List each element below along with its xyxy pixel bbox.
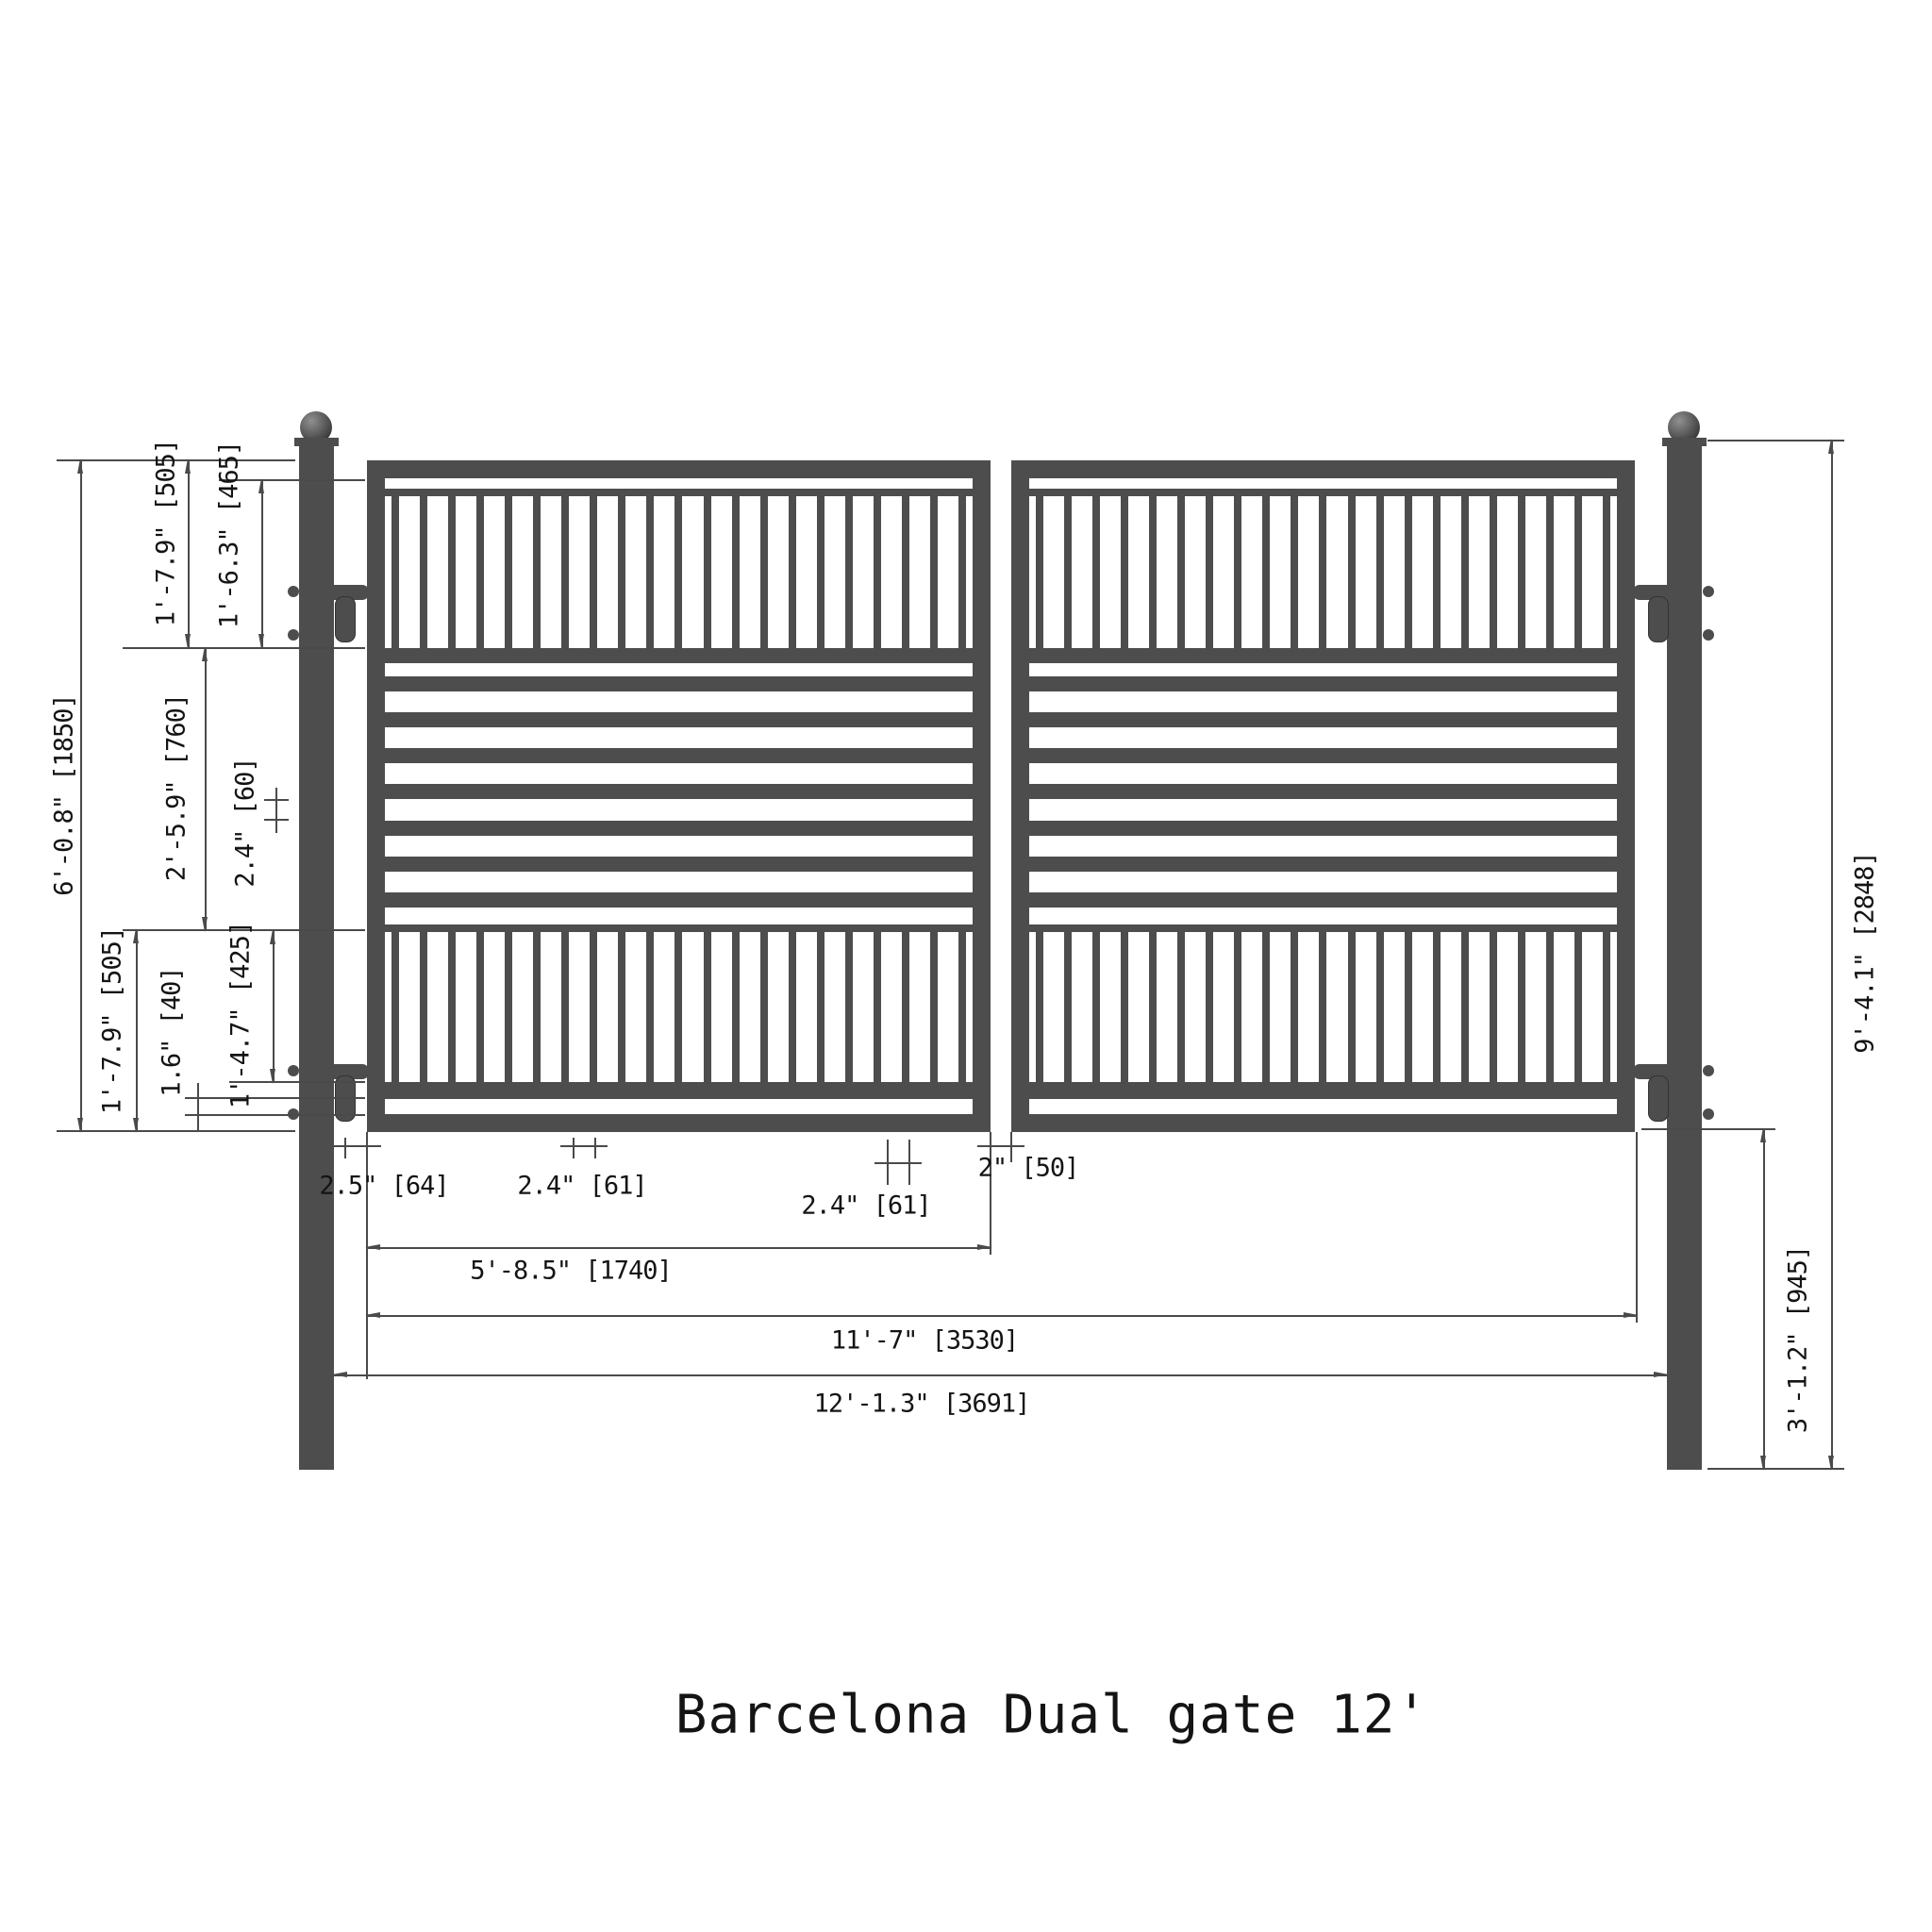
dim-line-leaf-width	[367, 1247, 991, 1249]
picket	[420, 496, 427, 648]
extension-line	[57, 1130, 295, 1132]
dim-line-top-picket	[261, 480, 263, 647]
picket	[1376, 496, 1384, 648]
mid-bar	[1029, 857, 1617, 872]
picket	[902, 932, 909, 1082]
extension-line	[1707, 1468, 1844, 1470]
picket	[590, 496, 597, 648]
picket	[561, 932, 569, 1082]
bottom-picket-row	[385, 932, 973, 1082]
extension-line	[990, 1132, 991, 1255]
picket	[533, 932, 541, 1082]
dim-line-post-below-gate	[1763, 1129, 1765, 1469]
picket	[1433, 932, 1441, 1082]
picket-bottom-rail	[385, 648, 973, 663]
picket	[1092, 932, 1100, 1082]
gate-leaf-left	[367, 460, 991, 1132]
picket	[930, 496, 938, 648]
gate-leaf-right	[1011, 460, 1635, 1132]
picket	[618, 932, 625, 1082]
picket	[1461, 496, 1469, 648]
picket	[704, 932, 711, 1082]
picket	[1206, 932, 1213, 1082]
picket-top-rail	[1029, 489, 1617, 496]
dim-text-picket-gap-bottom: 2.4" [61]	[801, 1191, 930, 1221]
gate-drawing: 6'-0.8" [1850] 1'-7.9" [505] 1'-6.3" [46…	[0, 0, 1932, 1932]
picket	[675, 496, 682, 648]
mid-bar	[1029, 712, 1617, 727]
dim-line-bar-spacing	[275, 788, 277, 833]
mid-bar	[1029, 892, 1617, 908]
picket	[1064, 496, 1072, 648]
picket	[561, 496, 569, 648]
picket	[476, 496, 484, 648]
mid-bar	[385, 676, 973, 691]
mid-bar	[385, 712, 973, 727]
dim-text-gate-height: 6'-0.8" [1850]	[50, 694, 79, 896]
top-picket-row	[1029, 496, 1617, 648]
picket	[1262, 932, 1270, 1082]
dim-line-bottom-gap	[197, 1083, 199, 1130]
dim-text-overall-width: 12'-1.3" [3691]	[814, 1390, 1030, 1419]
dim-line-overall-width	[334, 1374, 1667, 1376]
picket-bottom-rail	[1029, 1082, 1617, 1099]
picket	[1546, 496, 1554, 648]
picket-bottom-rail	[385, 1082, 973, 1099]
dim-text-leaf-width: 5'-8.5" [1740]	[470, 1257, 672, 1286]
picket	[1603, 932, 1610, 1082]
picket	[618, 496, 625, 648]
extension-line	[366, 1132, 368, 1379]
picket	[448, 932, 456, 1082]
picket	[1376, 932, 1384, 1082]
picket	[732, 496, 740, 648]
dim-line-bottom-section	[136, 930, 138, 1131]
extension-line	[1641, 1128, 1775, 1130]
picket	[1574, 932, 1582, 1082]
bottom-picket-row	[1029, 932, 1617, 1082]
picket	[1206, 496, 1213, 648]
picket	[1234, 932, 1241, 1082]
picket	[420, 932, 427, 1082]
picket	[1092, 496, 1100, 648]
extension-line	[185, 1114, 365, 1116]
picket	[1177, 932, 1185, 1082]
picket	[874, 932, 881, 1082]
dim-text-post-height: 9'-4.1" [2848]	[1851, 852, 1880, 1054]
picket	[930, 932, 938, 1082]
picket	[1546, 932, 1554, 1082]
dim-line-post-height	[1831, 441, 1833, 1469]
picket	[1490, 932, 1497, 1082]
dim-line-gate-width	[367, 1315, 1637, 1317]
mid-bar	[385, 748, 973, 763]
mid-bar	[385, 784, 973, 799]
dim-text-bottom-picket-height: 1'-4.7" [425]	[226, 922, 256, 1108]
picket	[1348, 932, 1356, 1082]
picket	[1461, 932, 1469, 1082]
picket	[505, 496, 512, 648]
picket	[760, 932, 768, 1082]
drawing-title: Barcelona Dual gate 12'	[675, 1685, 1428, 1746]
extension-line	[1707, 440, 1844, 441]
picket	[675, 932, 682, 1082]
picket	[845, 932, 853, 1082]
picket	[1433, 496, 1441, 648]
picket	[1121, 496, 1128, 648]
dim-line-gate-height	[80, 460, 82, 1131]
dim-text-gate-width: 11'-7" [3530]	[831, 1326, 1018, 1356]
picket-top-rail	[1029, 924, 1617, 932]
picket	[789, 932, 796, 1082]
picket	[1291, 496, 1298, 648]
dim-text-top-picket-height: 1'-6.3" [465]	[215, 441, 244, 628]
picket	[590, 932, 597, 1082]
tick	[573, 1138, 575, 1158]
picket	[1234, 496, 1241, 648]
dim-text-bottom-gap: 1.6" [40]	[158, 967, 187, 1096]
picket	[845, 496, 853, 648]
picket	[1518, 496, 1525, 648]
tick	[332, 1145, 381, 1147]
dim-line-middle-section	[205, 648, 207, 930]
picket	[1348, 496, 1356, 648]
picket	[646, 496, 654, 648]
mid-bar	[1029, 676, 1617, 691]
dim-text-bottom-section-height: 1'-7.9" [505]	[98, 927, 127, 1114]
top-picket-row	[385, 496, 973, 648]
picket	[1064, 932, 1072, 1082]
picket	[760, 496, 768, 648]
picket	[1405, 932, 1412, 1082]
dim-text-post-below-gate: 3'-1.2" [945]	[1784, 1246, 1813, 1433]
picket	[476, 932, 484, 1082]
picket	[1149, 932, 1157, 1082]
tick	[344, 1138, 346, 1158]
extension-line	[185, 1097, 365, 1099]
picket	[732, 932, 740, 1082]
picket-top-rail	[385, 924, 973, 932]
picket	[789, 496, 796, 648]
picket	[1490, 496, 1497, 648]
picket	[391, 496, 399, 648]
picket	[448, 496, 456, 648]
picket	[1319, 496, 1326, 648]
picket	[704, 496, 711, 648]
picket	[1405, 496, 1412, 648]
picket	[646, 932, 654, 1082]
tick	[264, 799, 289, 801]
picket	[1518, 932, 1525, 1082]
mid-bar	[1029, 821, 1617, 836]
tick	[977, 1145, 1024, 1147]
mid-bar-stack	[1029, 676, 1617, 908]
picket	[958, 932, 966, 1082]
picket	[505, 932, 512, 1082]
picket	[1262, 496, 1270, 648]
picket	[533, 496, 541, 648]
dim-line-bottom-picket	[273, 931, 275, 1082]
picket	[1603, 496, 1610, 648]
dim-line-top-section	[188, 460, 190, 647]
picket	[817, 932, 824, 1082]
mid-bar-stack	[385, 676, 973, 908]
picket-bottom-rail	[1029, 648, 1617, 663]
dim-text-edge-picket-offset: 2.5" [64]	[319, 1172, 448, 1201]
picket	[817, 496, 824, 648]
picket	[1291, 932, 1298, 1082]
mid-bar	[385, 821, 973, 836]
dim-text-middle-section-height: 2'-5.9" [760]	[162, 694, 192, 881]
picket	[902, 496, 909, 648]
picket	[1574, 496, 1582, 648]
dim-text-bar-spacing: 2.4" [60]	[231, 758, 260, 887]
extension-line	[123, 647, 365, 649]
mid-bar	[385, 857, 973, 872]
picket	[1036, 496, 1043, 648]
picket	[1177, 496, 1185, 648]
picket	[1121, 932, 1128, 1082]
picket	[391, 932, 399, 1082]
picket	[958, 496, 966, 648]
picket-top-rail	[385, 489, 973, 496]
mid-bar	[1029, 748, 1617, 763]
dim-text-leaf-gap: 2" [50]	[978, 1154, 1079, 1183]
mid-bar	[1029, 784, 1617, 799]
extension-line	[1636, 1132, 1638, 1323]
dim-text-top-section-height: 1'-7.9" [505]	[152, 440, 181, 626]
picket	[1319, 932, 1326, 1082]
dim-text-picket-gap-top: 2.4" [61]	[517, 1172, 646, 1201]
tick	[560, 1145, 608, 1147]
tick	[594, 1138, 596, 1158]
picket	[874, 496, 881, 648]
tick	[264, 819, 289, 821]
picket	[1036, 932, 1043, 1082]
mid-bar	[385, 892, 973, 908]
picket	[1149, 496, 1157, 648]
tick	[874, 1162, 922, 1164]
